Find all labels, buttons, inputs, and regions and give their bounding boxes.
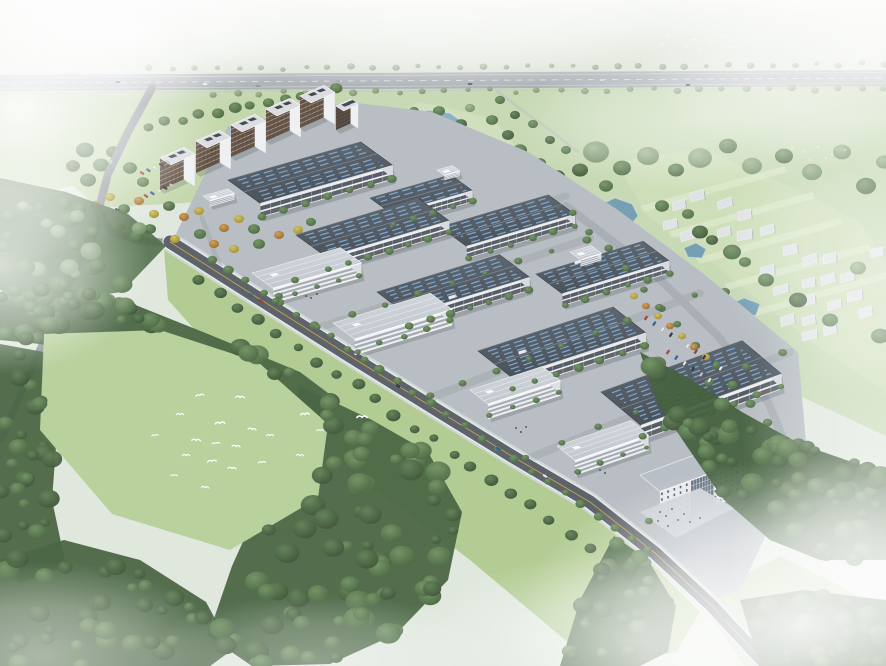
scene-canvas xyxy=(0,0,886,666)
fog-cloud xyxy=(515,48,885,192)
fog-layer xyxy=(0,0,886,666)
aerial-render-viewport xyxy=(0,0,886,666)
